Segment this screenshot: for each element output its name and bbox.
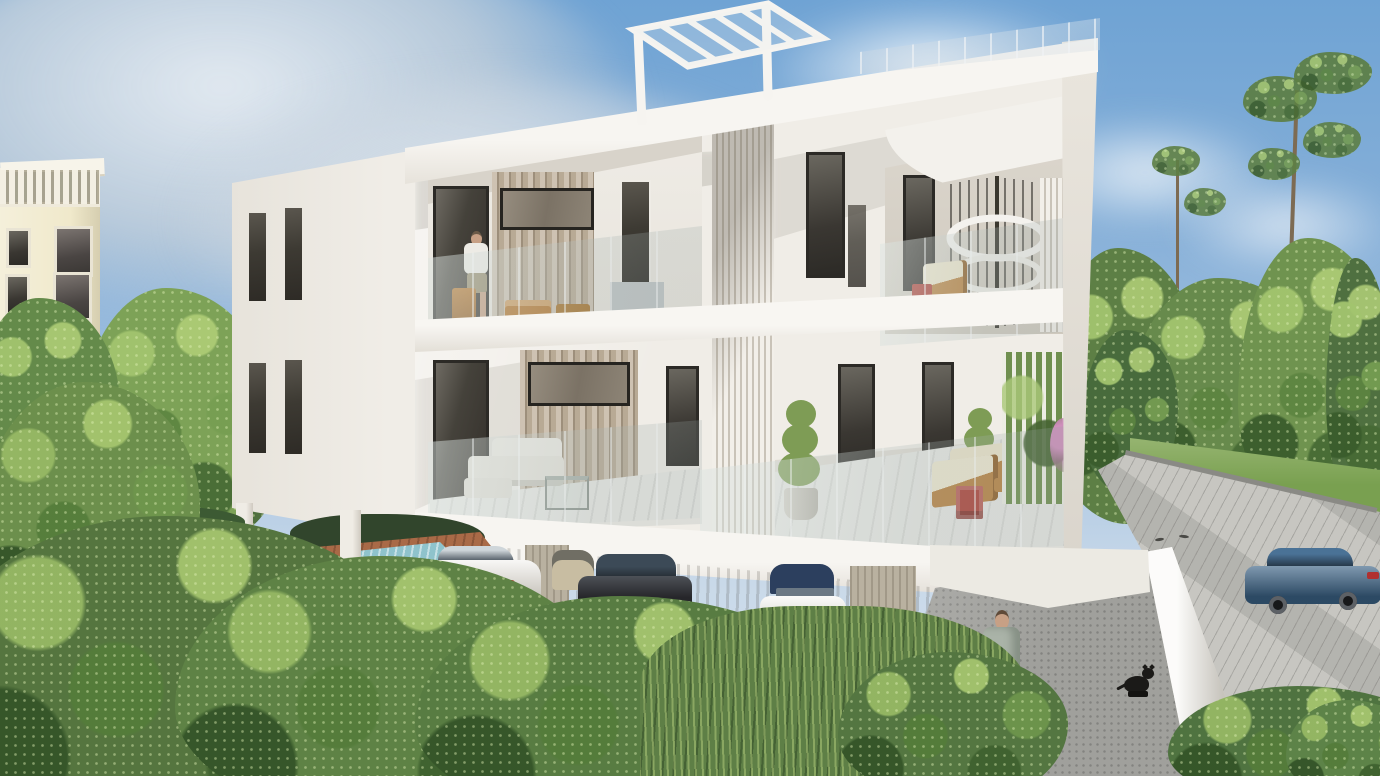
cat-legs: [1128, 691, 1148, 697]
black-cat: [1116, 664, 1160, 700]
architectural-render-scene: [0, 0, 1380, 776]
